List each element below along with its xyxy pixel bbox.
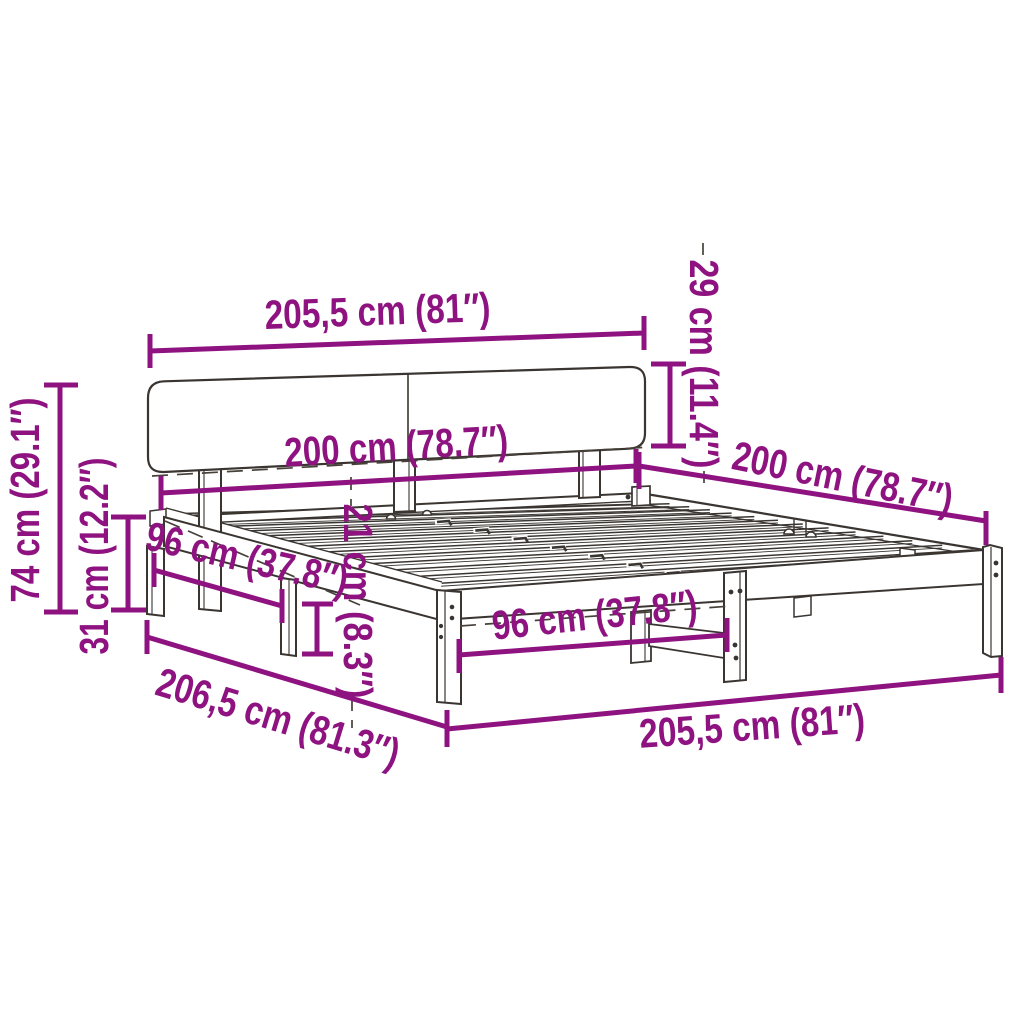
svg-text:74 cm (29.1″): 74 cm (29.1″): [2, 398, 48, 603]
svg-text:205,5 cm (81″): 205,5 cm (81″): [264, 284, 491, 338]
svg-text:29 cm (11.4″): 29 cm (11.4″): [681, 260, 727, 469]
svg-text:21 cm (8.3″): 21 cm (8.3″): [335, 504, 381, 699]
svg-text:31 cm (12.2″): 31 cm (12.2″): [71, 458, 117, 655]
